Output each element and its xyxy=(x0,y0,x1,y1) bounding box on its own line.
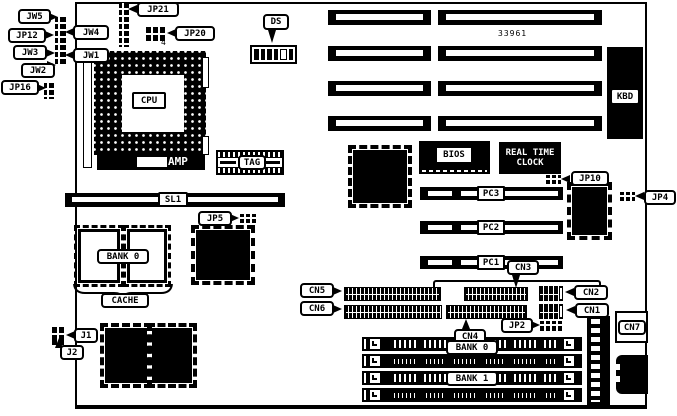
cn2-connector xyxy=(539,286,563,301)
isa-slot-stripe xyxy=(446,85,594,91)
jp20-pin4-label: 4 xyxy=(161,38,167,47)
simm-ticks xyxy=(394,359,556,364)
cn4-connector xyxy=(446,305,527,319)
label-mem-bank0: BANK 0 xyxy=(446,340,498,355)
simm-slot-4 xyxy=(362,388,582,402)
isa-slot-stripe xyxy=(446,50,594,56)
label-ds: DS xyxy=(263,14,289,30)
pci-stripe xyxy=(428,225,452,230)
simm-latch xyxy=(370,390,380,400)
jumper-jp2 xyxy=(540,321,563,331)
label-amp: AMP xyxy=(168,155,188,169)
label-cn3: CN3 xyxy=(507,260,539,275)
jumper-jp5 xyxy=(240,214,256,223)
label-jp12: JP12 xyxy=(8,28,46,43)
chip-qfp xyxy=(572,187,607,235)
label-jp10: JP10 xyxy=(571,171,609,186)
label-pc1: PC1 xyxy=(477,255,505,270)
dip-switch-pos xyxy=(280,49,287,60)
rtc-line1: REAL TIME xyxy=(506,148,555,158)
label-cache: CACHE xyxy=(101,293,149,308)
label-jp2: JP2 xyxy=(501,318,533,333)
chip-real-time-clock: REAL TIME CLOCK xyxy=(499,142,561,174)
label-jw5: JW5 xyxy=(18,9,51,24)
isa-slot-stripe xyxy=(336,85,423,91)
dip-switch-pos xyxy=(267,49,272,60)
socket-lever xyxy=(83,60,92,168)
cn1-connector xyxy=(539,304,563,319)
board-part-number: 33961 xyxy=(498,29,527,38)
isa-slot-stripe xyxy=(446,120,594,126)
cn5-connector xyxy=(344,287,441,301)
simm-slot-2 xyxy=(362,354,582,368)
din-notch xyxy=(616,376,620,382)
dip-switch-pos xyxy=(261,49,266,60)
socket-tab xyxy=(202,57,209,88)
label-cache-bank0: BANK 0 xyxy=(97,249,149,264)
jumper-jp10 xyxy=(546,175,561,184)
din-notch xyxy=(616,364,620,370)
label-cn6: CN6 xyxy=(300,301,334,316)
label-mem-bank1: BANK 1 xyxy=(446,371,498,386)
label-tag: TAG xyxy=(238,155,266,170)
callout-pointer xyxy=(128,5,137,13)
label-jp4: JP4 xyxy=(644,190,676,205)
callout-pointer xyxy=(565,288,574,296)
label-cn5: CN5 xyxy=(300,283,334,298)
jumper-jp4 xyxy=(620,192,635,201)
dip-switch-ds xyxy=(250,45,297,64)
label-pc2: PC2 xyxy=(477,220,505,235)
simm-latch xyxy=(564,339,574,349)
callout-pointer xyxy=(45,31,54,39)
simm-latch xyxy=(564,390,574,400)
rtc-line2: CLOCK xyxy=(516,158,543,168)
isa-slot-stripe xyxy=(336,50,423,56)
callout-pointer xyxy=(333,305,342,313)
socket-tab xyxy=(202,136,209,155)
edge-connector-pins xyxy=(591,319,600,402)
isa-slot-stripe xyxy=(336,14,423,20)
chip-qfp xyxy=(353,150,407,203)
edge-connector xyxy=(587,316,610,405)
simm-latch xyxy=(370,356,380,366)
isa-slot-stripe xyxy=(336,120,423,126)
label-jw2: JW2 xyxy=(21,63,55,78)
cn6-connector xyxy=(344,305,442,319)
label-bios: BIOS xyxy=(436,147,472,163)
label-jw3: JW3 xyxy=(13,45,47,60)
label-jp16: JP16 xyxy=(1,80,39,95)
chip-qfp xyxy=(196,230,250,280)
callout-pointer xyxy=(566,306,575,314)
label-pc3: PC3 xyxy=(477,186,505,201)
callout-pointer xyxy=(46,49,55,57)
label-cn7: CN7 xyxy=(618,320,646,335)
callout-pointer xyxy=(635,192,644,200)
label-jp20: JP20 xyxy=(175,26,215,41)
simm-ticks xyxy=(394,393,556,398)
callout-pointer xyxy=(462,319,470,329)
din-connector xyxy=(616,355,648,394)
dip-switch-pos xyxy=(274,49,279,60)
simm-latch xyxy=(564,356,574,366)
isa-slot-stripe xyxy=(446,14,594,20)
pci-stripe xyxy=(428,191,452,196)
label-j2: J2 xyxy=(60,345,84,360)
pci-stripe xyxy=(461,191,558,196)
label-j1: J1 xyxy=(74,328,98,343)
label-jp5: JP5 xyxy=(198,211,232,226)
label-kbd: KBD xyxy=(611,89,639,104)
dip-switch-pos xyxy=(289,49,294,60)
pci-stripe xyxy=(461,225,558,230)
simm-latch xyxy=(370,373,380,383)
amp-window xyxy=(137,157,167,167)
callout-pointer xyxy=(333,287,342,295)
label-cpu: CPU xyxy=(132,92,166,109)
simm-latch xyxy=(370,339,380,349)
amp-regulator: AMP xyxy=(97,154,205,170)
callout-pointer xyxy=(268,30,276,43)
label-cn1: CN1 xyxy=(575,303,609,318)
chip-qfp xyxy=(105,328,147,383)
pci-stripe xyxy=(428,260,452,265)
motherboard-diagram: 33961 KBD CPU AMP JW5 JW4 JP12 JW3 JW1 J… xyxy=(0,0,677,416)
chip-qfp xyxy=(152,328,192,383)
callout-pointer xyxy=(561,175,570,183)
cn3-connector xyxy=(464,287,528,301)
label-jw1: JW1 xyxy=(73,48,109,63)
label-sl1: SL1 xyxy=(158,192,188,207)
label-jw4: JW4 xyxy=(73,25,109,40)
simm-latch xyxy=(564,373,574,383)
callout-pointer xyxy=(512,275,520,288)
dip-switch-pos xyxy=(254,49,259,60)
label-jp21: JP21 xyxy=(137,2,179,17)
label-cn2: CN2 xyxy=(574,285,608,300)
